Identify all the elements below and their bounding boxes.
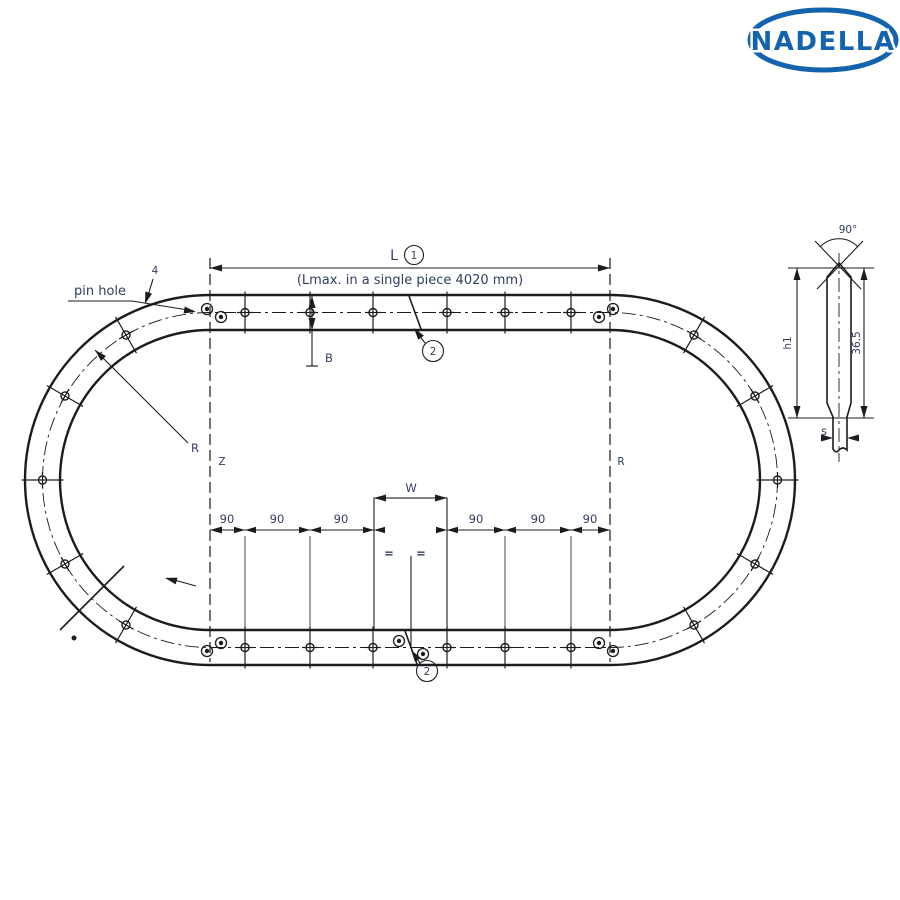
groove-angle-arc [820, 239, 858, 247]
ref-2b-number: 2 [424, 666, 431, 678]
dim-arrow [598, 265, 610, 272]
dim-tick [299, 527, 321, 533]
dim-tick [494, 527, 516, 533]
radius-callout: R [93, 348, 199, 455]
technical-drawing: NADELLA [0, 0, 900, 900]
mounting-hole-mark [302, 627, 318, 669]
hole-spacing-chain: 90 90 90 90 90 90 W = = [210, 481, 610, 648]
dim-arrow [210, 527, 222, 534]
logo-brand-text: NADELLA [751, 27, 896, 57]
dim-arrow [794, 268, 801, 280]
groove-construction-line [815, 241, 861, 289]
section-height-label: h1 [782, 336, 794, 349]
section-thickness-label: s [821, 424, 827, 438]
mounting-hole-mark [677, 603, 712, 647]
track-centerline [43, 313, 778, 648]
pin-hole-leader [68, 301, 194, 311]
dim-arrow [847, 435, 859, 442]
rail-width-label: B [325, 351, 333, 365]
mounting-hole-mark [733, 547, 777, 582]
arc-joint-arrow [164, 575, 177, 585]
joint-reference-top: 2 [411, 326, 443, 362]
dim-arrow [861, 406, 868, 418]
mounting-hole-mark [677, 313, 712, 357]
pin-hole-mark [216, 638, 227, 649]
groove-construction-line [817, 241, 863, 289]
mounting-hole-mark [563, 292, 579, 334]
pin-hole-callout: pin hole 4 [68, 265, 197, 315]
equal-mark-left: = [384, 546, 394, 560]
tangent-right-label: R [617, 456, 624, 468]
spacing-90-label: 90 [583, 512, 598, 526]
mounting-hole-mark [439, 292, 455, 334]
outer-rail-outline [25, 295, 795, 665]
length-dimension: L 1 (Lmax. in a single piece 4020 mm) [210, 246, 610, 289]
dim-arrow [861, 268, 868, 280]
mounting-hole-mark [302, 292, 318, 334]
pin-hole-mark [608, 304, 619, 315]
mounting-hole-mark [109, 603, 144, 647]
mounting-hole-mark [497, 292, 513, 334]
oval-track-plan-view [22, 258, 799, 669]
radius-leader [95, 350, 188, 443]
spacing-90-label: 90 [531, 512, 546, 526]
mounting-hole-mark [733, 379, 777, 414]
drawing-page: NADELLA [0, 0, 900, 900]
ref-1-number: 1 [411, 250, 418, 262]
spacing-90-label: 90 [469, 512, 484, 526]
arc-joint-marker [72, 636, 77, 641]
pin-hole-mark [594, 312, 605, 323]
section-width-label: 36.5 [851, 331, 863, 354]
mounting-hole-mark [563, 627, 579, 669]
inner-rail-outline [60, 330, 760, 630]
dim-arrow [374, 495, 386, 502]
joint-gap-label: W [405, 481, 416, 495]
mounting-hole-mark [365, 627, 381, 669]
tangent-left-label: Z [218, 456, 225, 468]
pin-hole-mark [202, 646, 213, 657]
spacing-90-label: 90 [220, 512, 235, 526]
pin-hole-mark [594, 638, 605, 649]
mounting-hole-mark [22, 472, 64, 488]
mounting-hole-mark [237, 627, 253, 669]
dim-arrow [435, 495, 447, 502]
pin-hole-label: pin hole [74, 284, 126, 299]
dim-arrow [598, 527, 610, 534]
mounting-hole-mark [497, 627, 513, 669]
mounting-hole-mark [439, 627, 455, 669]
equal-mark-right: = [416, 546, 426, 560]
groove-angle-label: 90° [839, 224, 858, 236]
spacing-90-label: 90 [270, 512, 285, 526]
mounting-hole-mark [365, 292, 381, 334]
pin-hole-mark [216, 312, 227, 323]
mounting-hole-mark [109, 313, 144, 357]
mounting-hole-mark [757, 472, 799, 488]
length-label: L [390, 248, 398, 264]
dim-tick [234, 527, 256, 533]
mounting-hole-mark [237, 292, 253, 334]
dim-tick [560, 527, 582, 533]
radius-label: R [191, 441, 199, 455]
pin-hole-mark [394, 636, 405, 647]
dim-arrow [210, 265, 222, 272]
dim-arrow [794, 406, 801, 418]
rail-cross-section: 90° h1 36.5 s [782, 224, 874, 462]
ref-2-arrow [411, 326, 424, 340]
arc-segment-joint-cut [60, 566, 124, 630]
nadella-logo: NADELLA [750, 10, 896, 70]
ref-2-number: 2 [430, 346, 437, 358]
pin-hole-diameter: 4 [152, 265, 159, 277]
length-note: (Lmax. in a single piece 4020 mm) [297, 273, 523, 288]
spacing-90-label: 90 [334, 512, 349, 526]
mounting-hole-mark [43, 379, 87, 414]
mounting-hole-mark [43, 547, 87, 582]
